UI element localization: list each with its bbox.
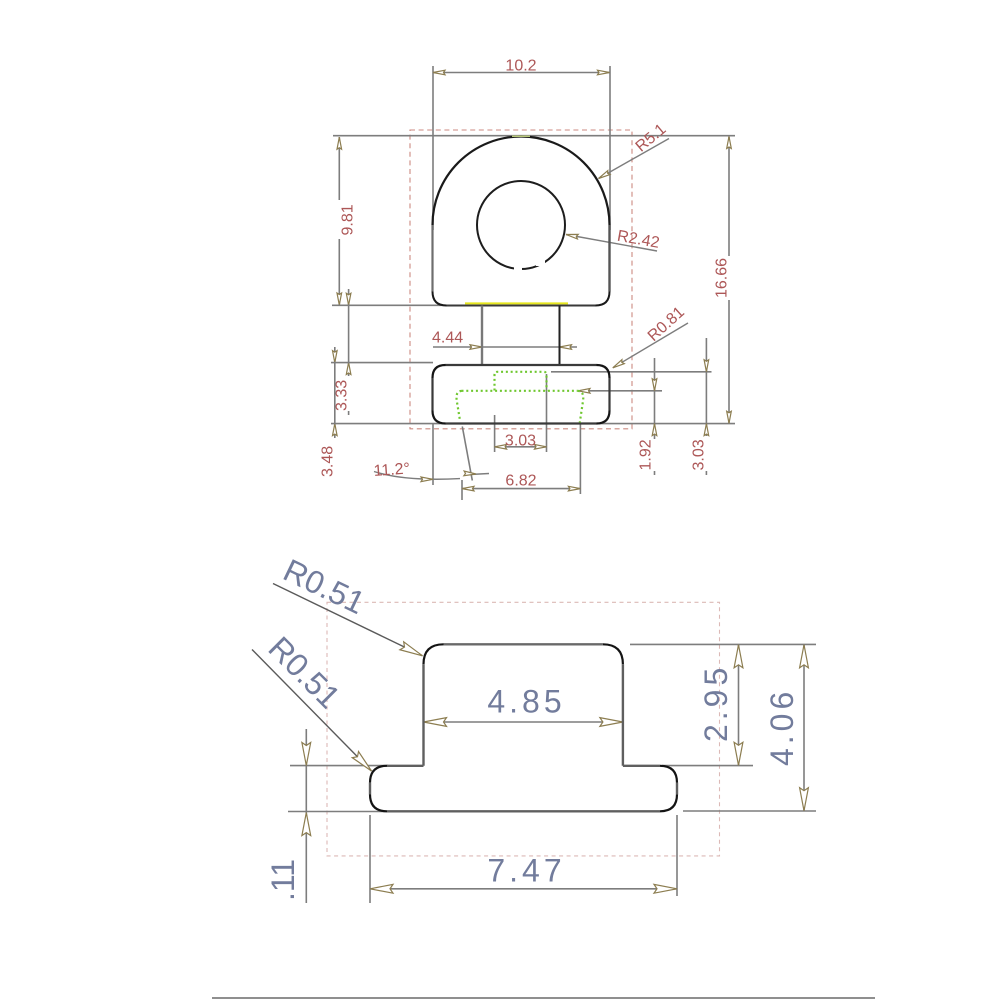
svg-text:16.66: 16.66 xyxy=(714,258,731,298)
svg-text:4.44: 4.44 xyxy=(432,330,463,347)
svg-text:4.06: 4.06 xyxy=(764,688,800,766)
svg-text:3.48: 3.48 xyxy=(320,446,337,477)
svg-text:R0.51: R0.51 xyxy=(278,552,371,621)
svg-text:2.95: 2.95 xyxy=(698,664,734,742)
svg-text:.11: .11 xyxy=(265,859,301,901)
svg-text:R2.42: R2.42 xyxy=(616,228,661,252)
svg-text:11.2°: 11.2° xyxy=(373,460,410,479)
svg-text:3.03: 3.03 xyxy=(505,433,536,450)
svg-text:6.82: 6.82 xyxy=(505,473,536,490)
svg-text:3.03: 3.03 xyxy=(691,439,708,470)
svg-text:1.92: 1.92 xyxy=(638,439,655,470)
svg-text:4.85: 4.85 xyxy=(487,684,565,720)
svg-text:10.2: 10.2 xyxy=(505,58,536,75)
svg-text:7.47: 7.47 xyxy=(487,853,565,889)
svg-text:R5.1: R5.1 xyxy=(633,121,670,156)
svg-text:3.33: 3.33 xyxy=(334,380,351,411)
svg-text:9.81: 9.81 xyxy=(340,204,357,235)
svg-text:R0.81: R0.81 xyxy=(645,304,688,345)
